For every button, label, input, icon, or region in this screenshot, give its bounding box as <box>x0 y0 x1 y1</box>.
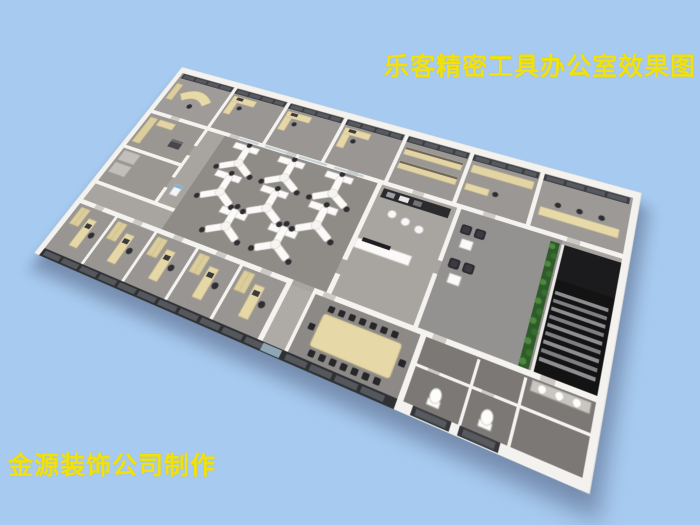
page-title: 乐客精密工具办公室效果图 <box>384 47 696 83</box>
floorplan-projection <box>34 67 642 494</box>
page-background: 乐客精密工具办公室效果图 金源装饰公司制作 <box>0 0 700 525</box>
floorplan-svg <box>34 67 642 494</box>
credit-text: 金源装饰公司制作 <box>8 446 216 482</box>
